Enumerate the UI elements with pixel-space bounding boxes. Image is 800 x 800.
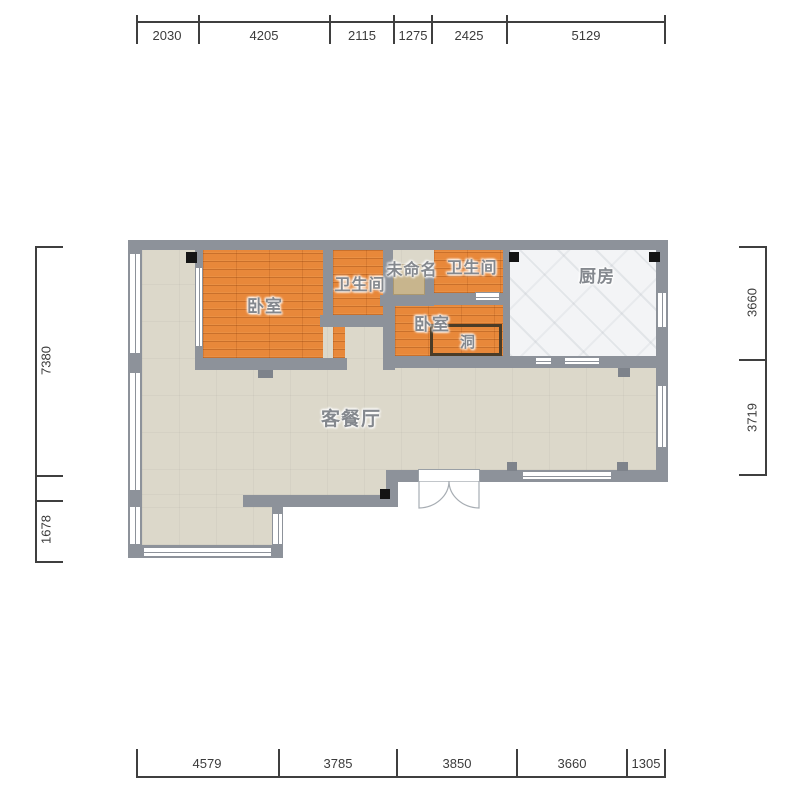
room-label-kitchen: 厨房	[557, 262, 637, 287]
room-label-bedroom-left: 卧室	[225, 292, 305, 317]
dim-label: 7380	[39, 325, 54, 397]
window-left-upper	[129, 253, 141, 354]
window-bedroom-left	[195, 267, 203, 347]
dim-label: 2030	[131, 28, 203, 43]
dim-tick	[739, 359, 767, 361]
wall-top	[128, 240, 668, 250]
room-label-hole: 洞	[448, 331, 488, 352]
dim-tick	[739, 474, 767, 476]
dim-label: 1678	[39, 494, 54, 566]
wall-bathroom-left-south	[320, 315, 392, 327]
column-marker-top-left	[186, 252, 197, 263]
dim-label: 1305	[610, 756, 682, 771]
pier-kitchen-south	[618, 368, 630, 377]
wall-mid-south	[383, 356, 668, 368]
window-bathroom-right	[475, 292, 500, 301]
dim-tick	[516, 749, 518, 778]
dim-label: 3850	[421, 756, 493, 771]
dim-label: 2425	[433, 28, 505, 43]
dim-label: 5129	[550, 28, 622, 43]
window-kitchen-south-b	[564, 357, 600, 365]
wall-bedroom-left-south	[195, 358, 347, 370]
dim-tick	[506, 15, 508, 44]
pier-door-left	[507, 462, 517, 471]
dim-label: 3785	[302, 756, 374, 771]
dim-tick	[35, 475, 63, 477]
dim-tick	[739, 246, 767, 248]
column-marker-kitchen-right	[649, 252, 660, 262]
dimension-right-line	[765, 246, 767, 476]
dim-tick	[278, 749, 280, 778]
dim-tick	[136, 749, 138, 778]
dim-tick	[664, 15, 666, 44]
window-bay-east	[272, 513, 283, 545]
dim-label: 3660	[745, 267, 760, 339]
dim-label: 4579	[171, 756, 243, 771]
dim-label: 4205	[228, 28, 300, 43]
window-left-lower	[129, 506, 141, 545]
room-label-living-dining: 客餐厅	[291, 404, 411, 431]
dimension-bottom-line	[136, 776, 666, 778]
window-living-east	[657, 385, 667, 448]
floor-plan-canvas: 卧室 卫生间 未命名 卫生间 厨房 卧室 洞 客餐厅 2030 4205 211…	[0, 0, 800, 800]
dimension-top-line	[136, 21, 666, 23]
column-marker-entry	[380, 489, 390, 499]
room-label-bathroom-right: 卫生间	[422, 254, 522, 278]
window-kitchen-east	[657, 292, 667, 328]
pier-door-right	[617, 462, 628, 471]
dim-label: 3719	[745, 382, 760, 454]
entry-door-leaves-icon	[418, 481, 480, 509]
wall-step-horizontal	[243, 495, 398, 507]
dimension-left-line	[35, 246, 37, 563]
window-living-south	[522, 471, 612, 480]
window-bay-south	[143, 547, 272, 557]
window-left-middle	[129, 372, 141, 491]
floor-plan: 卧室 卫生间 未命名 卫生间 厨房 卧室 洞 客餐厅	[0, 0, 800, 800]
pier-bedroom-left-south	[258, 370, 273, 378]
dim-tick	[35, 246, 63, 248]
dim-label: 3660	[536, 756, 608, 771]
bedroom-left-door-opening	[333, 325, 345, 358]
dim-tick	[396, 749, 398, 778]
living-room-floor-mid	[142, 470, 386, 495]
window-kitchen-south-a	[535, 357, 552, 365]
